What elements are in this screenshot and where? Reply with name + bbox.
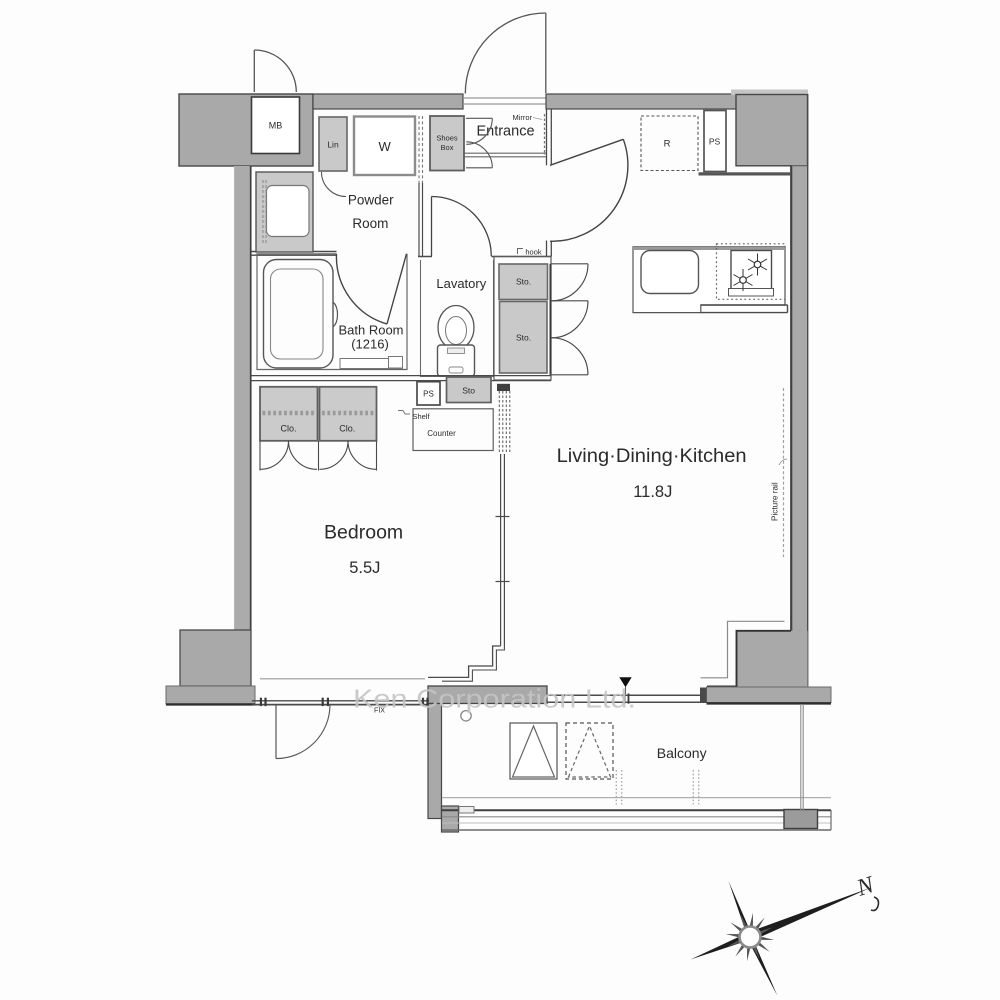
svg-text:11.8J: 11.8J [633,483,672,501]
svg-text:Powder: Powder [348,193,394,208]
svg-text:5.5J: 5.5J [349,559,380,577]
svg-text:Shelf: Shelf [412,412,430,421]
svg-text:Room: Room [352,216,388,231]
svg-text:Sto.: Sto. [516,277,531,287]
svg-text:W: W [379,139,392,154]
svg-text:Sto.: Sto. [516,333,531,343]
svg-text:Mirror: Mirror [513,113,533,122]
svg-text:Sto: Sto [462,386,475,396]
svg-text:Clo.: Clo. [339,424,355,434]
svg-text:R: R [664,139,671,150]
svg-text:Picture rail: Picture rail [771,482,780,521]
svg-text:Bedroom: Bedroom [324,522,403,544]
svg-text:Box: Box [441,143,454,152]
svg-text:(1216): (1216) [351,337,389,352]
svg-text:Shoes: Shoes [436,134,458,143]
svg-text:PS: PS [709,137,721,147]
svg-text:Bath Room: Bath Room [338,323,403,338]
svg-text:PS: PS [423,390,434,399]
svg-text:Lin: Lin [327,140,339,150]
svg-text:Entrance: Entrance [476,124,534,140]
svg-text:Living·Dining·Kitchen: Living·Dining·Kitchen [557,445,747,467]
svg-text:Ken Corporation Ltd.: Ken Corporation Ltd. [353,684,636,714]
svg-text:Clo.: Clo. [280,424,296,434]
svg-text:MB: MB [269,121,283,131]
svg-text:Counter: Counter [427,429,456,438]
svg-text:Balcony: Balcony [657,745,707,761]
svg-text:Lavatory: Lavatory [436,276,486,291]
svg-text:hook: hook [525,248,542,257]
